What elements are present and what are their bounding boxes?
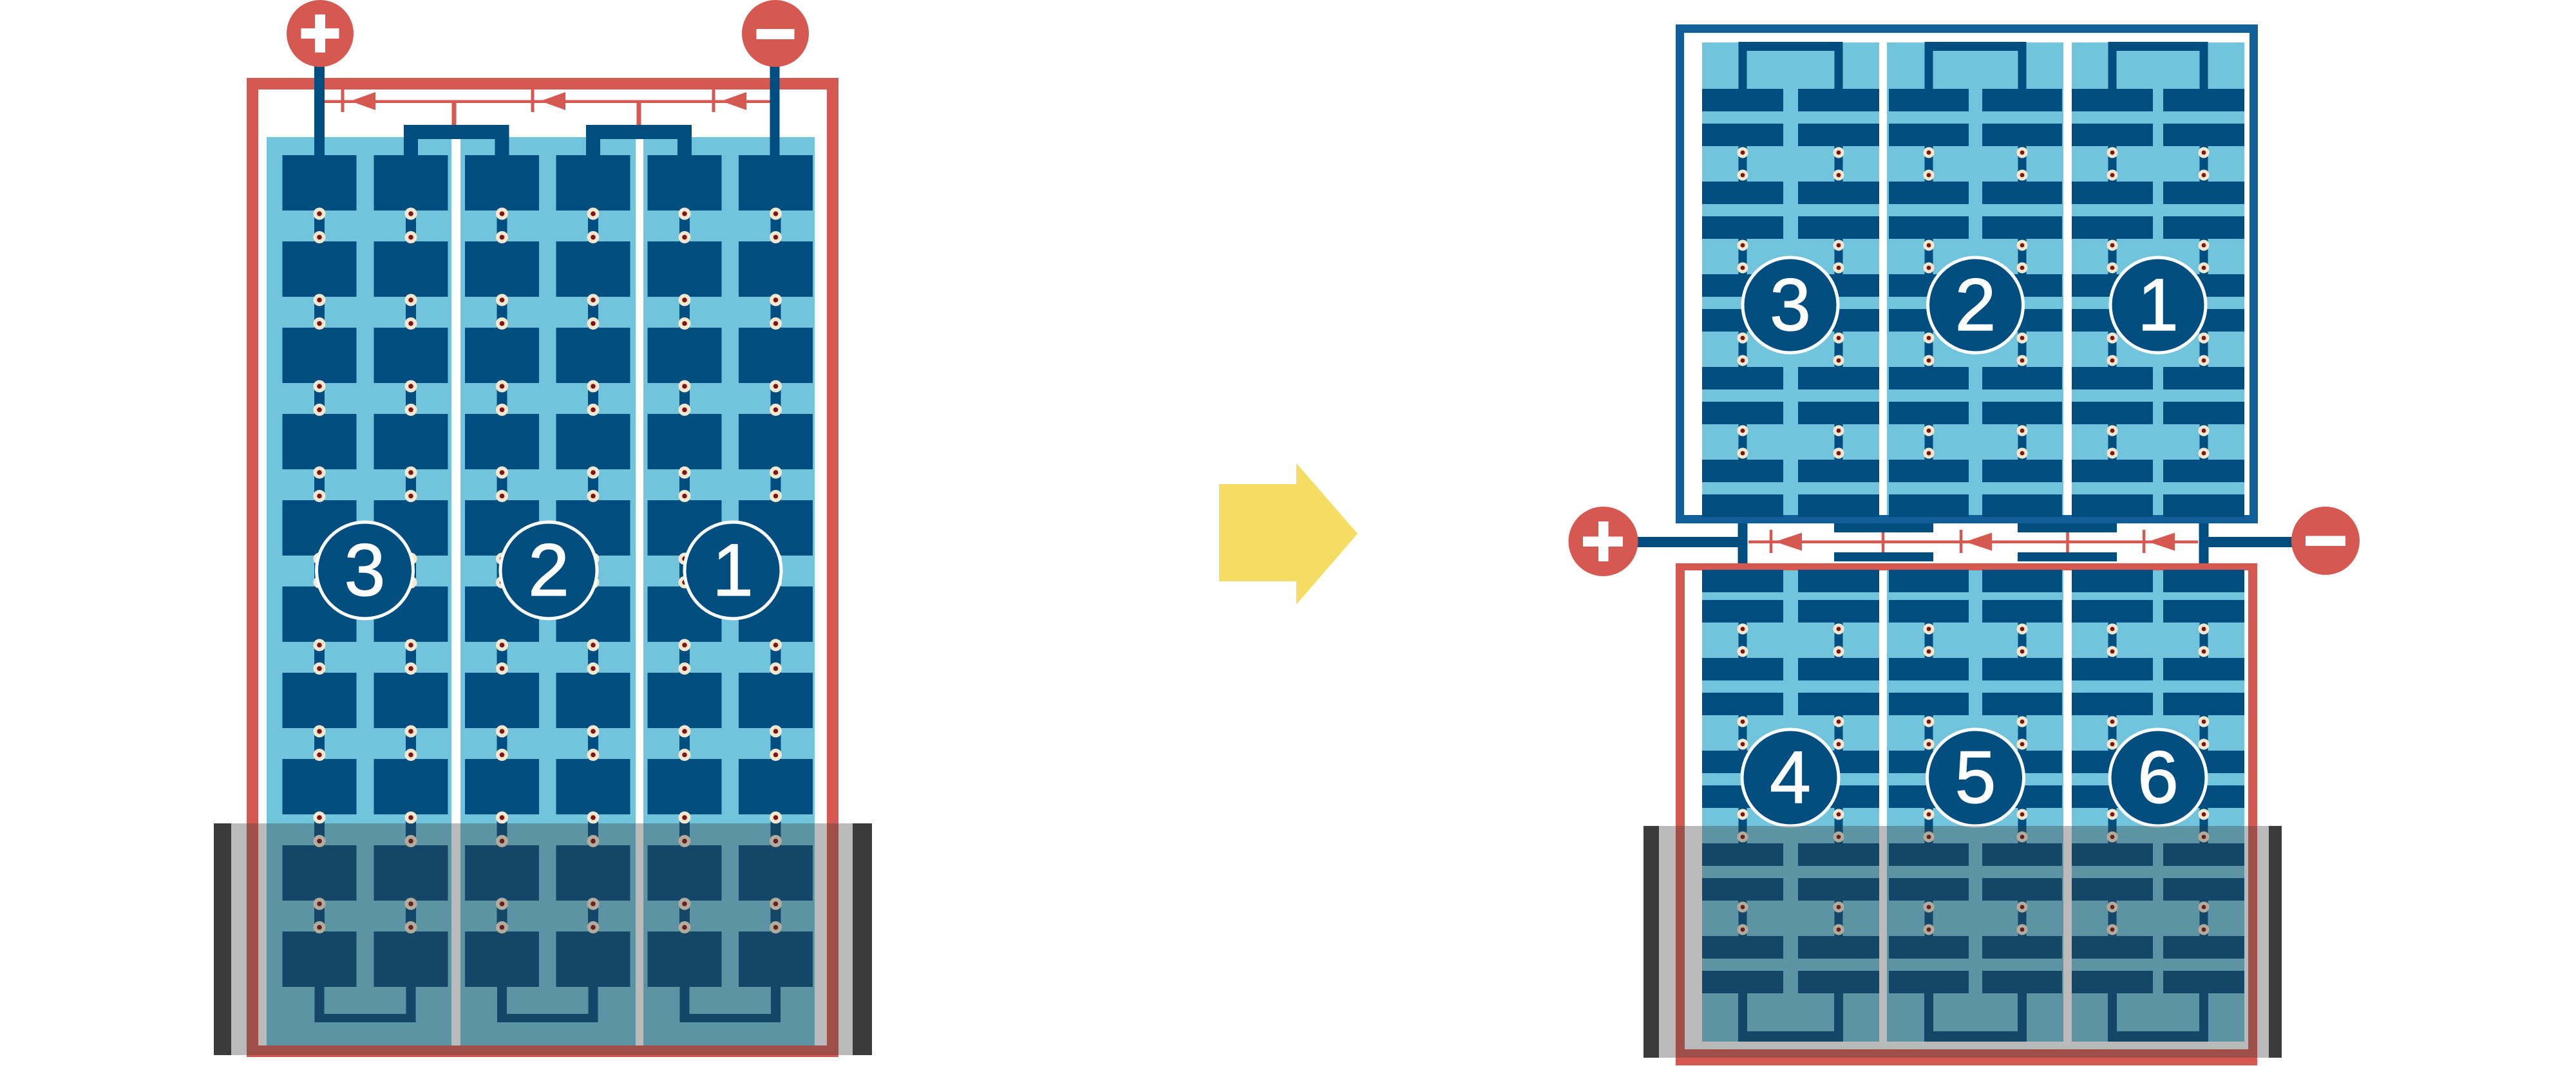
svg-text:2: 2 [528,529,569,612]
svg-text:3: 3 [345,529,386,612]
svg-text:3: 3 [1770,264,1811,346]
svg-text:6: 6 [2137,736,2179,819]
svg-text:5: 5 [1955,736,1996,819]
svg-text:1: 1 [2137,264,2179,346]
svg-text:1: 1 [712,529,753,612]
svg-text:4: 4 [1770,736,1811,819]
svg-text:2: 2 [1955,264,1996,346]
